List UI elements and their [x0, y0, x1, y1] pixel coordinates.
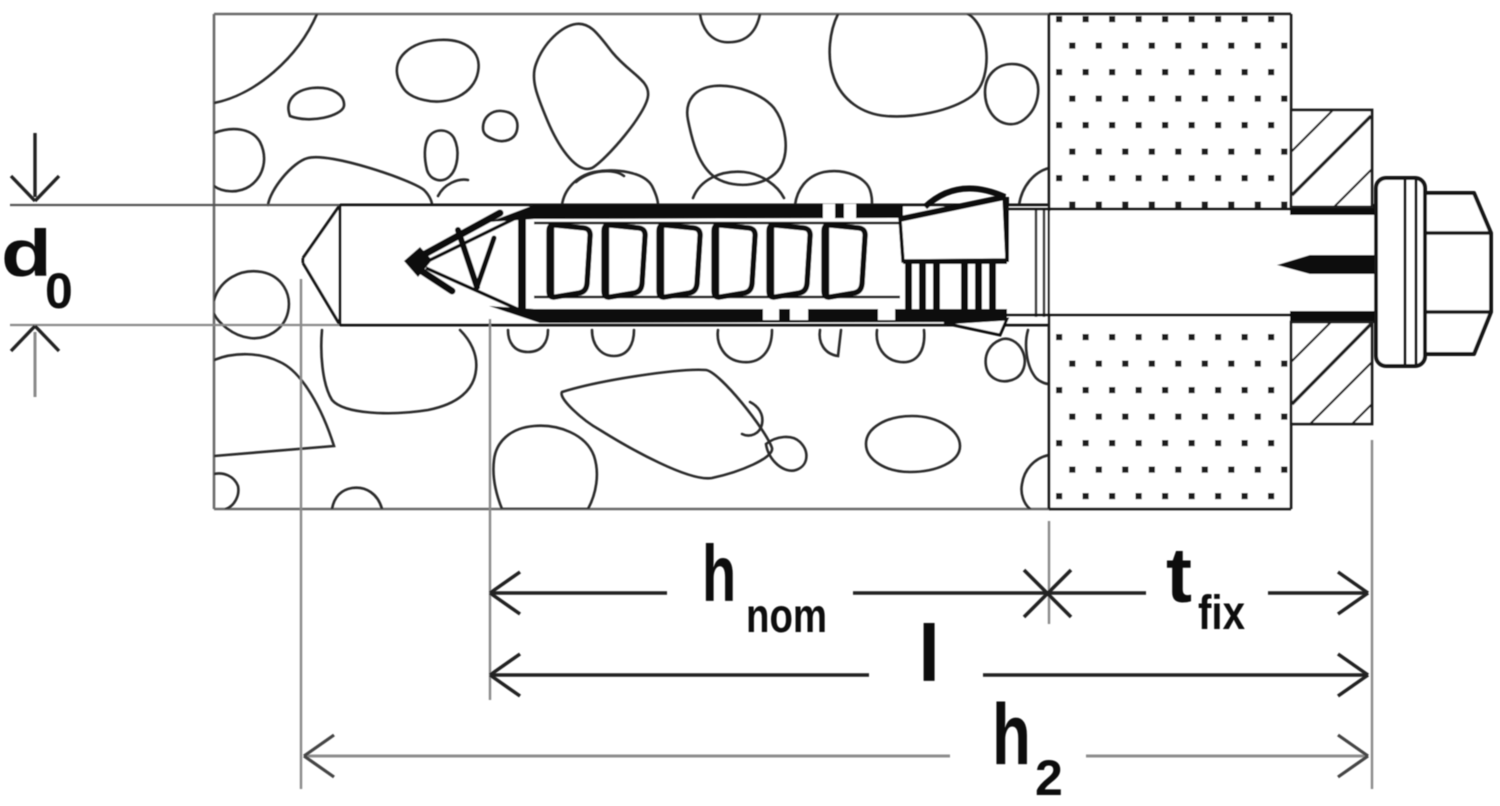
svg-text:nom: nom: [746, 590, 827, 643]
svg-text:l: l: [918, 609, 940, 698]
svg-text:t: t: [1166, 531, 1192, 619]
svg-text:h: h: [702, 528, 736, 618]
svg-text:h: h: [992, 688, 1031, 783]
svg-text:0: 0: [45, 263, 73, 319]
svg-text:2: 2: [1035, 750, 1063, 806]
svg-text:fix: fix: [1198, 587, 1245, 640]
